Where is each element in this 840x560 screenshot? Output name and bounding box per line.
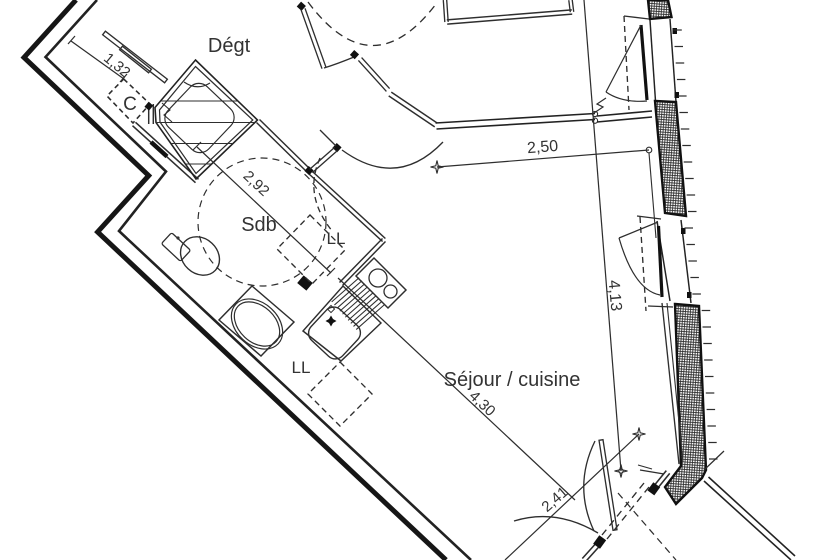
svg-text:LL: LL: [292, 358, 311, 377]
svg-text:C: C: [123, 94, 137, 115]
svg-text:LL: LL: [327, 229, 346, 248]
svg-text:4,13: 4,13: [605, 279, 625, 312]
svg-text:2,50: 2,50: [526, 138, 558, 157]
svg-text:Séjour / cuisine: Séjour / cuisine: [444, 369, 581, 391]
svg-text:Dégt: Dégt: [208, 35, 251, 57]
svg-text:Sdb: Sdb: [241, 214, 277, 236]
